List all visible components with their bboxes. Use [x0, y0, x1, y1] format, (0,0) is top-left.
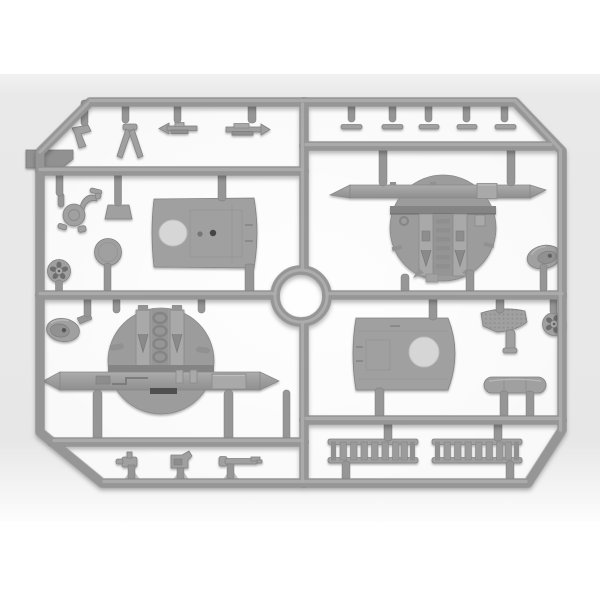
- part-intake-scoop: [105, 205, 132, 219]
- sprue-photo: Light gray injection-molded plastic mode…: [0, 0, 600, 600]
- part-tank: [484, 377, 546, 393]
- part-radiator-core-left: [328, 439, 418, 463]
- part-wing-center-panel: [152, 198, 257, 268]
- photo-stage: Light gray injection-molded plastic mode…: [0, 0, 600, 600]
- part-radiator-core-right: [432, 439, 522, 463]
- part-fuselage-panel: [353, 318, 455, 390]
- part-spoked-wheel-left: [48, 260, 71, 283]
- part-round-disc: [95, 239, 122, 266]
